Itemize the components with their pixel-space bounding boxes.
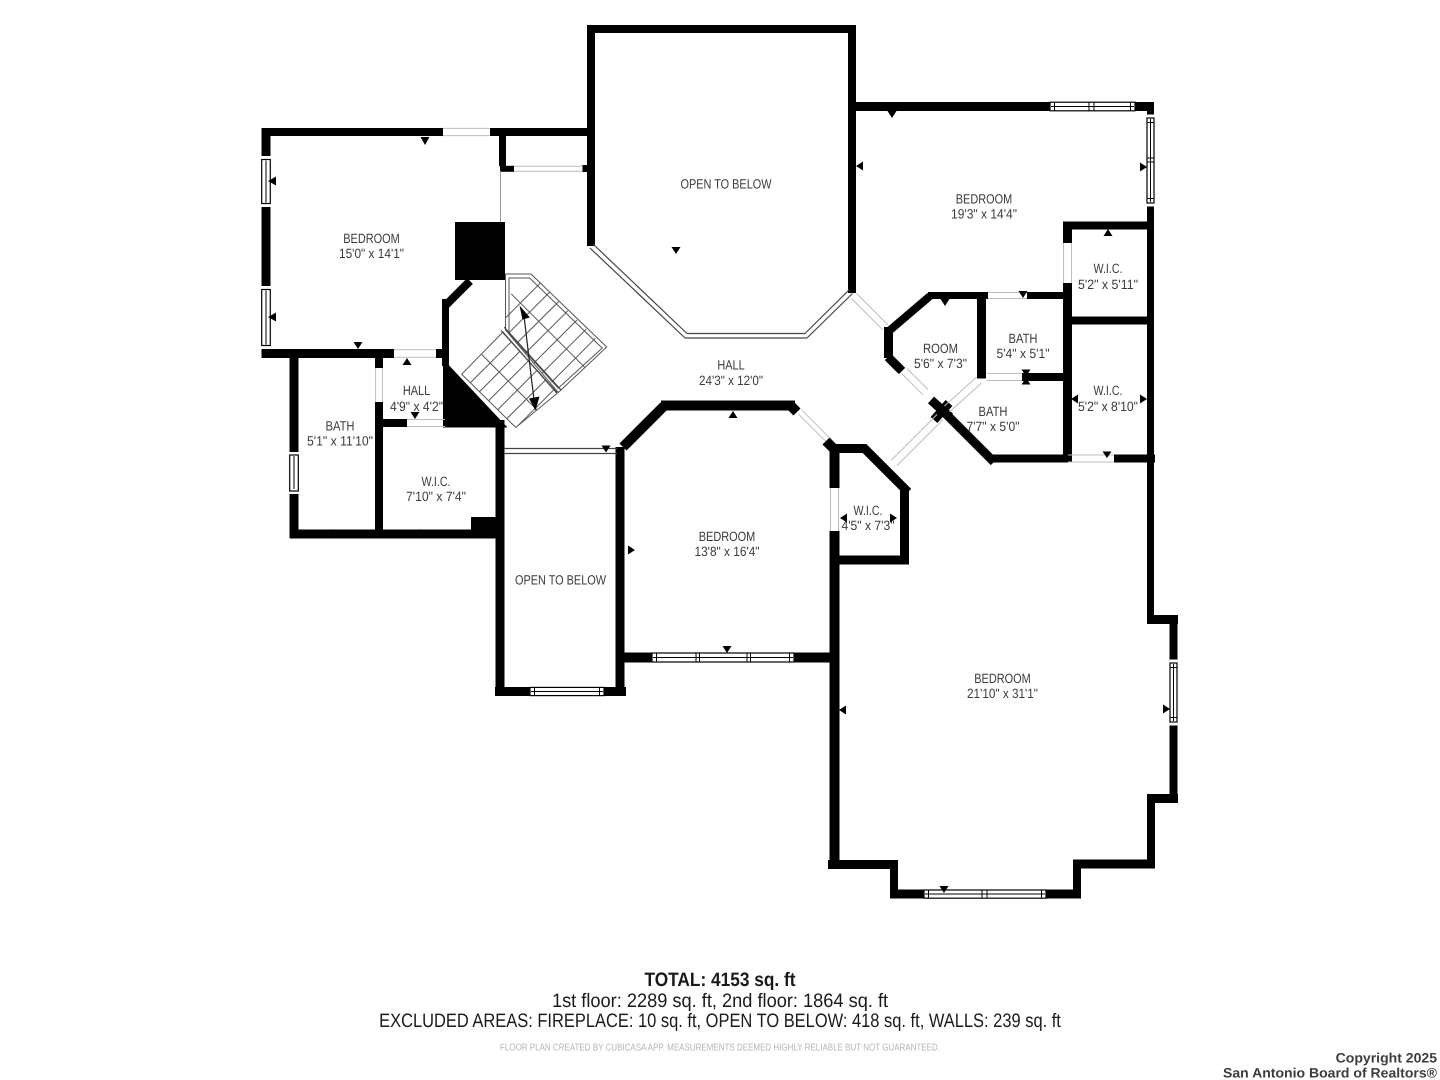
svg-text:BATH: BATH [979,404,1008,419]
svg-text:San Antonio Board of Realtors®: San Antonio Board of Realtors® [1223,1065,1437,1080]
svg-text:TOTAL: 4153 sq. ft: TOTAL: 4153 sq. ft [644,969,795,991]
svg-text:FLOOR PLAN CREATED BY CUBICASA: FLOOR PLAN CREATED BY CUBICASA APP. MEAS… [500,1043,940,1054]
svg-text:W.I.C.: W.I.C. [1094,383,1123,398]
svg-text:7'7" x 5'0": 7'7" x 5'0" [966,419,1019,434]
svg-text:HALL: HALL [717,358,745,373]
svg-text:BATH: BATH [326,419,355,434]
svg-text:OPEN TO BELOW: OPEN TO BELOW [680,177,771,192]
svg-text:W.I.C.: W.I.C. [422,474,451,489]
svg-text:W.I.C.: W.I.C. [1094,261,1123,276]
svg-text:13'8" x 16'4": 13'8" x 16'4" [694,544,759,559]
svg-text:BEDROOM: BEDROOM [974,671,1031,686]
svg-text:OPEN TO BELOW: OPEN TO BELOW [515,573,606,588]
svg-text:ROOM: ROOM [923,341,958,356]
svg-text:BEDROOM: BEDROOM [343,231,400,246]
svg-text:BEDROOM: BEDROOM [699,529,756,544]
svg-text:5'4" x 5'1": 5'4" x 5'1" [996,346,1049,361]
svg-text:HALL: HALL [403,383,431,398]
svg-text:5'2" x 5'11": 5'2" x 5'11" [1078,277,1138,292]
svg-text:15'0" x 14'1": 15'0" x 14'1" [339,246,404,261]
svg-text:5'2" x 8'10": 5'2" x 8'10" [1078,399,1138,414]
svg-text:1st floor: 2289 sq. ft, 2nd fl: 1st floor: 2289 sq. ft, 2nd floor: 1864 … [552,990,889,1012]
svg-text:21'10" x 31'1": 21'10" x 31'1" [967,686,1038,701]
svg-text:BEDROOM: BEDROOM [956,192,1013,207]
svg-text:EXCLUDED AREAS: FIREPLACE: 10: EXCLUDED AREAS: FIREPLACE: 10 sq. ft, OP… [379,1010,1061,1032]
svg-text:Copyright 2025: Copyright 2025 [1336,1050,1438,1065]
svg-text:4'5" x 7'3": 4'5" x 7'3" [841,518,894,533]
svg-text:W.I.C.: W.I.C. [854,503,883,518]
svg-text:24'3" x 12'0": 24'3" x 12'0" [699,373,763,388]
svg-text:BATH: BATH [1009,331,1038,346]
svg-text:5'6" x 7'3": 5'6" x 7'3" [914,356,967,371]
svg-text:5'1" x 11'10": 5'1" x 11'10" [307,434,373,449]
svg-text:19'3" x 14'4": 19'3" x 14'4" [951,207,1017,222]
svg-text:4'9" x 4'2": 4'9" x 4'2" [390,399,443,414]
svg-text:7'10" x 7'4": 7'10" x 7'4" [406,489,466,504]
